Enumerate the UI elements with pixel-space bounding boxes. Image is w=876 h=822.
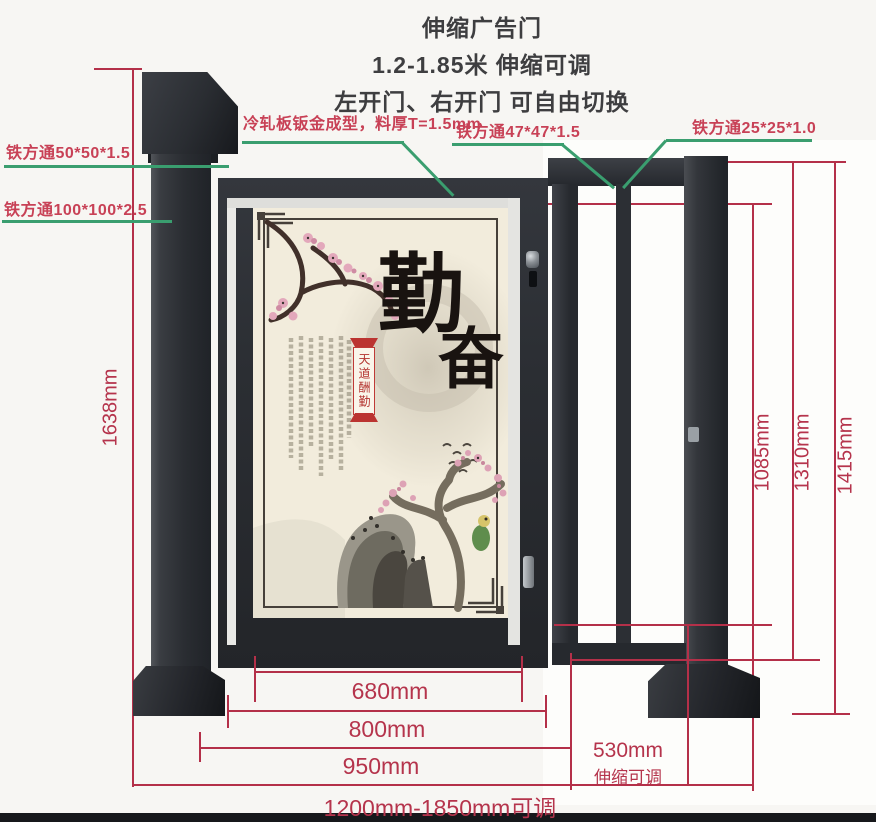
dim-1638-line <box>132 68 134 787</box>
gate-motor-box <box>142 72 238 154</box>
dim-1085-bottom-tick <box>554 624 772 626</box>
dim-530-right-line <box>687 626 689 786</box>
leader-tube47 <box>452 143 564 146</box>
door-inner-edge-top <box>227 198 520 208</box>
gate-left-post <box>151 154 211 684</box>
dim-800-line <box>228 710 547 712</box>
gate-left-post-base <box>133 666 225 716</box>
title-block: 伸缩广告门 1.2-1.85米 伸缩可调 左开门、右开门 可自由切换 <box>252 10 712 121</box>
banner-body: 天道酬勤 <box>353 347 375 415</box>
banner-cap-top <box>350 338 378 347</box>
leader-tube100 <box>2 220 172 223</box>
dim-680-right-tick <box>521 656 523 702</box>
callout-cold-rolled: 冷轧板钣金成型，料厚T=1.5mm <box>243 110 481 134</box>
dim-1415-bottom-tick <box>792 713 850 715</box>
green-bird <box>472 525 490 551</box>
callout-tube-25: 铁方通25*25*1.0 <box>692 114 816 138</box>
dim-label-950: 950mm <box>331 753 431 780</box>
gate-right-post-base <box>648 664 760 718</box>
right-post-bolt <box>688 427 699 442</box>
door-lower-handle <box>523 556 534 588</box>
gate-right-post <box>684 156 728 672</box>
dim-950-line <box>200 747 572 749</box>
dim-label-1085: 1085mm <box>752 403 775 503</box>
gate-bottom-rail <box>552 643 686 665</box>
door-lock-knob <box>526 251 539 268</box>
door-inner-edge-left <box>227 198 236 645</box>
dim-label-800: 800mm <box>337 716 437 743</box>
gate-bar-wide <box>552 184 578 648</box>
dim-680-line <box>255 671 523 673</box>
dim-label-1310: 1310mm <box>792 403 815 503</box>
dim-1310-bottom-tick <box>570 659 820 661</box>
calligraphy-fen: 奋 <box>438 326 504 392</box>
scroll-banner: 天道酬勤 <box>352 338 376 422</box>
leader-coldrolled <box>242 141 404 144</box>
dim-680-left-tick <box>254 656 256 702</box>
title-range: 1.2-1.85米 伸缩可调 <box>252 47 712 84</box>
banner-text: 天道酬勤 <box>358 353 370 409</box>
dim-label-1415: 1415mm <box>835 406 858 506</box>
page-title: 伸缩广告门 <box>252 10 712 47</box>
callout-tube-100: 铁方通100*100*2.5 <box>4 196 147 220</box>
callout-tube-50: 铁方通50*50*1.5 <box>6 139 130 163</box>
callout-tube-47: 铁方通47*47*1.5 <box>456 118 580 142</box>
door-keyhole <box>529 271 537 287</box>
horizon-wash <box>253 519 345 618</box>
dim-label-1638: 1638mm <box>100 358 123 458</box>
dim-label-680: 680mm <box>340 678 440 705</box>
dim-label-total-width: 1200mm-1850mm可调 <box>290 789 590 822</box>
leader-tube50 <box>4 165 229 168</box>
dim-label-530: 530mm <box>578 739 678 763</box>
door-inner-edge-right <box>508 198 520 645</box>
dim-label-530-note: 伸缩可调 <box>578 763 678 788</box>
leader-tube25 <box>666 139 812 142</box>
dim-530-left-line <box>570 653 572 790</box>
gate-bar-thin <box>616 184 631 648</box>
dim-1638-top-tick <box>94 68 142 70</box>
gate-spec-diagram: 勤 奋 天道酬勤 伸缩广告门 1.2-1.85米 伸 <box>0 0 876 822</box>
